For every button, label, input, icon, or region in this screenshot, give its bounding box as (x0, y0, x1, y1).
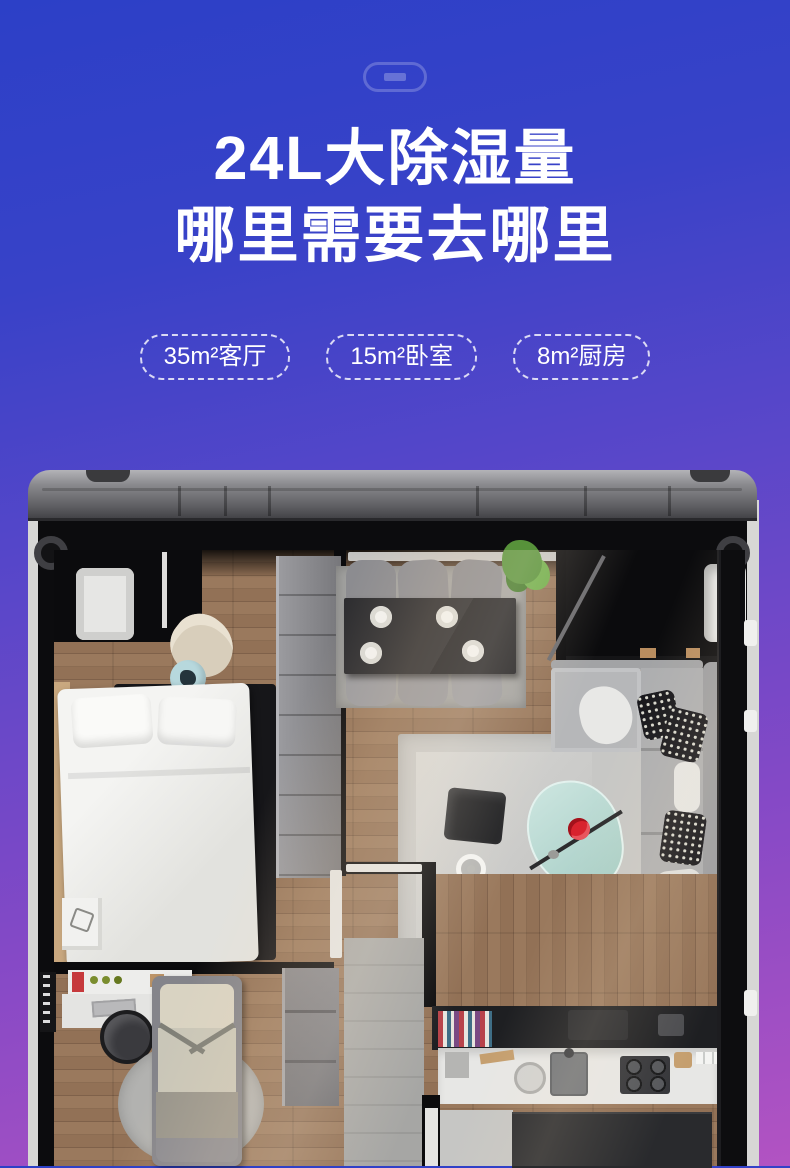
leather-pouf (443, 787, 506, 845)
patterned-pillow (659, 809, 708, 866)
badge-living-room: 35m²客厅 (140, 334, 291, 380)
desk-jar (90, 976, 98, 984)
wall-door-notch (744, 620, 757, 646)
hero-section: 24L大除湿量 哪里需要去哪里 35m²客厅 15m²卧室 8m²厨房 (0, 0, 790, 380)
single-bed-pillow (160, 984, 234, 1028)
corner-knob-left (86, 470, 130, 482)
potted-plant (502, 540, 542, 584)
place-setting (360, 642, 382, 664)
title-line-2: 哪里需要去哪里 (0, 197, 790, 274)
desk-jar (102, 976, 110, 984)
panel-seam (584, 486, 587, 516)
range-hood (568, 1010, 628, 1040)
dining-chair (346, 670, 396, 706)
cookbooks (438, 1011, 492, 1047)
bathroom-right-wall (422, 862, 436, 1007)
badge-bedroom: 15m²卧室 (326, 334, 477, 380)
bathroom-tile-floor (344, 938, 424, 1166)
panel-seam (476, 486, 479, 516)
kitchen-door-panel (425, 1108, 438, 1166)
island-floor-mat (440, 1110, 513, 1166)
sofa-console-item (686, 648, 700, 658)
right-inner-wall (717, 550, 745, 1166)
wall-door-notch (744, 710, 757, 732)
promo-page: { "page": { "gradient_top": "#2c40c7", "… (0, 0, 790, 1166)
white-pillow (674, 762, 700, 812)
single-bed-sheet (158, 1028, 236, 1092)
dining-chair (451, 668, 503, 707)
kitchen-island (512, 1112, 712, 1168)
prep-basin (550, 1052, 588, 1096)
sideboard-shelf-line (285, 1060, 336, 1063)
wardrobe (276, 556, 341, 878)
bed-pillow (70, 693, 153, 748)
book-spines (43, 975, 50, 1029)
title-line-1: 24L大除湿量 (0, 120, 790, 197)
dehumidifier-pill-outline-icon (363, 62, 427, 92)
place-setting (370, 606, 392, 628)
apartment-floorplan-render (28, 470, 757, 1166)
bed-pillow (157, 696, 237, 748)
bathroom-door-sill (346, 864, 422, 872)
top-frame (28, 470, 757, 521)
sideboard-shelf-line (285, 1010, 336, 1013)
panel-seam (178, 486, 181, 516)
panel-seam (668, 486, 671, 516)
outer-wall-right (745, 500, 759, 1166)
single-bed-blanket (156, 1092, 238, 1138)
sofa-console-item (640, 648, 656, 658)
wall-door-notch (744, 990, 757, 1016)
corner-knob-right (690, 470, 730, 482)
washing-machine (76, 568, 134, 640)
wood-tray (674, 1052, 692, 1068)
desk-jar (114, 976, 122, 984)
side-table-decor (180, 670, 196, 686)
single-bed-foot (156, 1138, 238, 1162)
dining-chair (397, 669, 449, 708)
red-flower (568, 818, 590, 840)
round-sink (514, 1062, 546, 1094)
icon-inner-bar (384, 73, 406, 81)
gray-pebble (548, 850, 559, 859)
gray-sideboard (282, 968, 339, 1106)
badge-kitchen: 8m²厨房 (513, 334, 650, 380)
gas-stove (620, 1056, 670, 1094)
bathroom-left-door-frame (330, 870, 342, 958)
page-title: 24L大除湿量 哪里需要去哪里 (0, 120, 790, 274)
faucet (564, 1048, 574, 1058)
kitchen-floor (436, 874, 717, 1008)
top-frame-groove (42, 488, 742, 491)
dehumidifier-center-dot (467, 865, 475, 873)
closet-door-frame (162, 552, 167, 628)
place-setting (462, 640, 484, 662)
coffee-maker (658, 1014, 684, 1036)
red-book (72, 972, 84, 992)
panel-seam (268, 486, 271, 516)
room-badges: 35m²客厅 15m²卧室 8m²厨房 (0, 334, 790, 380)
counter-box (445, 1052, 469, 1078)
place-setting (436, 606, 458, 628)
panel-seam (224, 486, 227, 516)
